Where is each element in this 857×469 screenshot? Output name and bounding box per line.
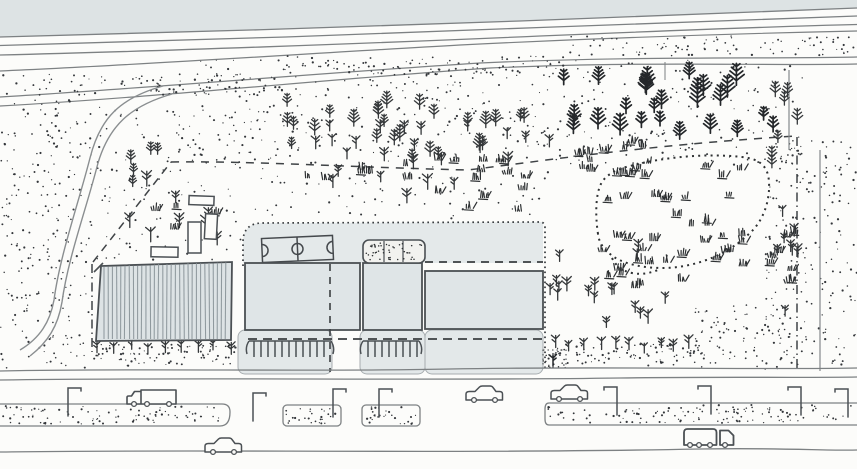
sports-court-midline — [297, 237, 298, 261]
building-east — [425, 271, 543, 329]
apron-left — [238, 330, 332, 374]
van-vehicle — [684, 429, 734, 447]
truck-vehicle — [127, 390, 176, 406]
building-middle — [363, 263, 422, 330]
outbuilding-3 — [188, 222, 201, 253]
campus — [238, 222, 566, 374]
site-plan-drawing: Hand-drawn site plan sketch Aerial sketc… — [0, 0, 857, 469]
courtyard — [363, 240, 425, 263]
outbuilding-2 — [204, 214, 217, 240]
striped-building — [94, 262, 232, 341]
apron-right — [425, 330, 543, 374]
apron-middle — [360, 330, 425, 374]
building-west — [245, 263, 360, 330]
site-plan-stage: Hand-drawn site plan sketch Aerial sketc… — [0, 0, 857, 469]
outbuilding-1 — [189, 196, 214, 206]
outbuilding-4 — [151, 247, 178, 257]
